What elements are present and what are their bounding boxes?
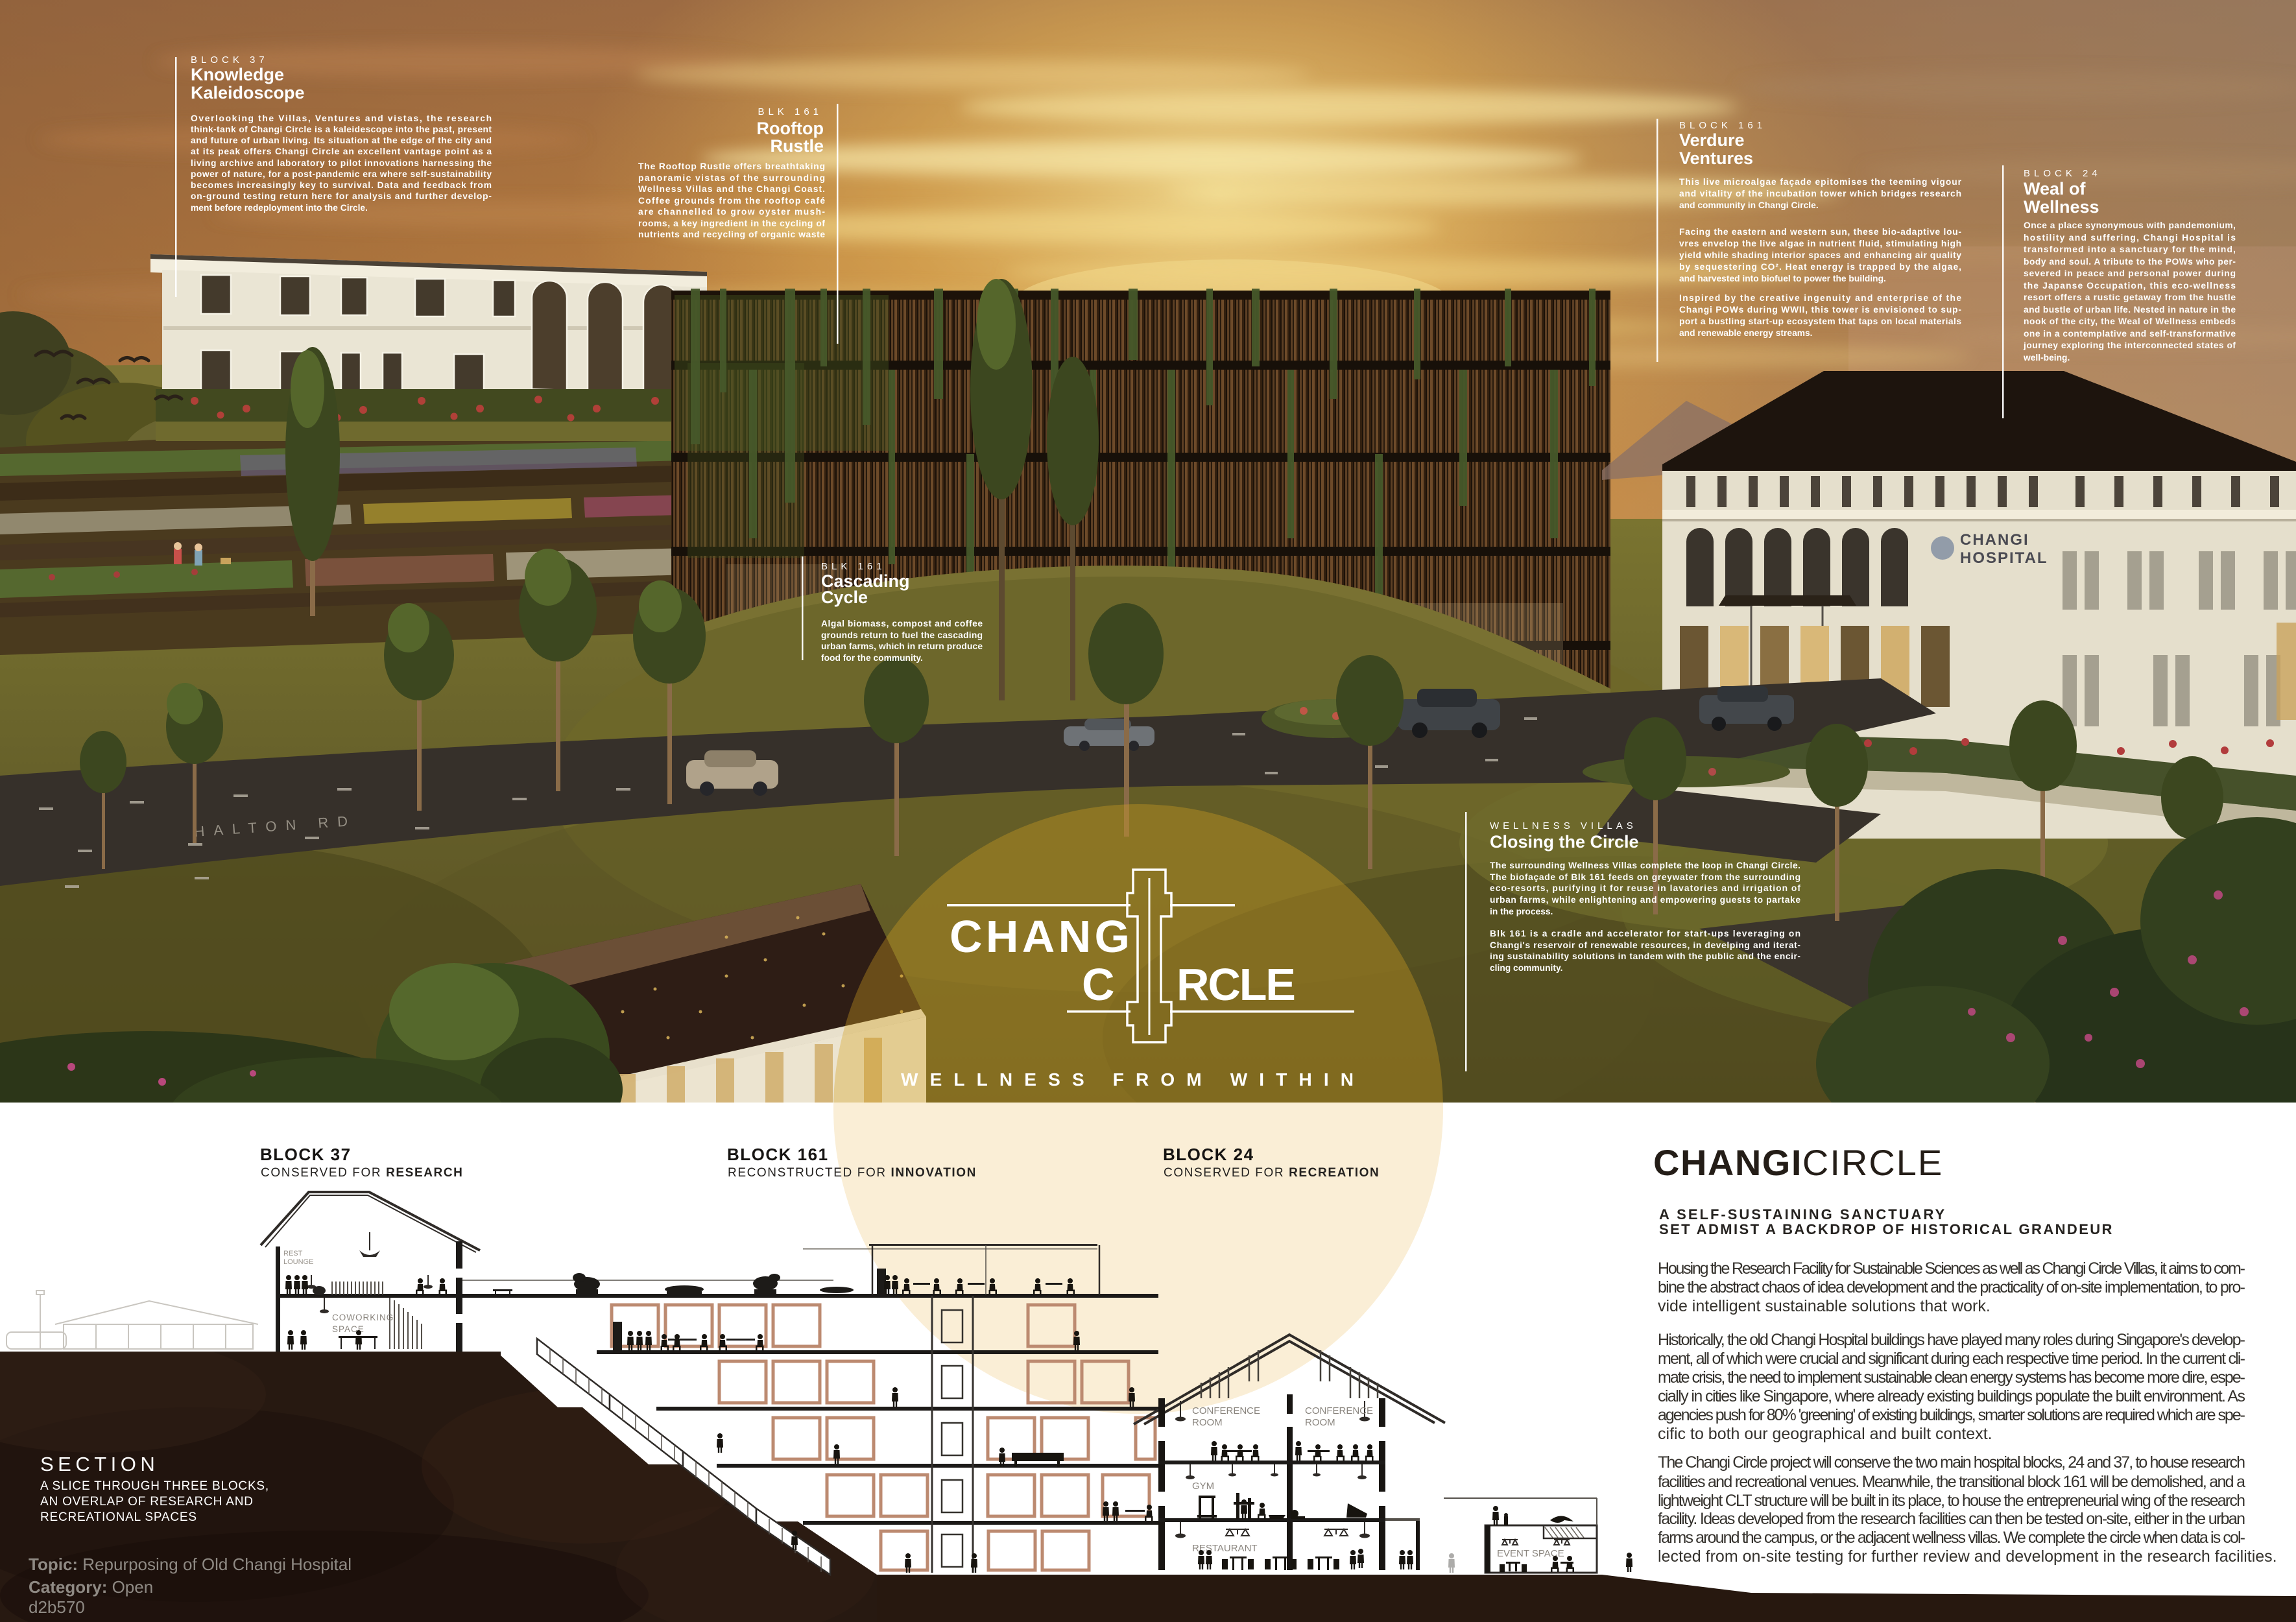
svg-text:ment before redeployment into: ment before redeployment into the Circle… [191, 203, 368, 213]
svg-text:Historically, the old Changi H: Historically, the old Changi Hospital bu… [1658, 1331, 2245, 1349]
svg-text:Housing the Research Facility: Housing the Research Facility for Sustai… [1658, 1259, 2245, 1278]
svg-text:BLOCK 161: BLOCK 161 [1679, 120, 1766, 131]
svg-text:eco-resorts, purifying it for: eco-resorts, purifying it for reuse in l… [1490, 883, 1800, 893]
svg-text:one in a contemplative and sel: one in a contemplative and self-transfor… [2024, 329, 2236, 339]
svg-text:urban farms, while enlightenin: urban farms, while enlightening and empo… [1490, 895, 1800, 905]
svg-text:ing sustainability solutions i: ing sustainability solutions in tandem w… [1490, 951, 1800, 961]
svg-text:The Rooftop Rustle offers brea: The Rooftop Rustle offers breathtaking [638, 161, 825, 171]
svg-text:lightweight CLT structure will: lightweight CLT structure will be built … [1658, 1492, 2245, 1510]
svg-text:on-ground testing return here: on-ground testing return here for analys… [191, 191, 492, 201]
svg-text:CHANGI: CHANGI [1960, 531, 2029, 549]
svg-text:LOUNGE: LOUNGE [283, 1258, 313, 1266]
svg-text:RCLE: RCLE [1177, 959, 1296, 1010]
svg-text:and harvested into biofuel to: and harvested into biofuel to power the … [1679, 274, 1886, 283]
svg-text:and bustle of urban life. Nest: and bustle of urban life. Nested in natu… [2024, 305, 2236, 315]
svg-text:are channelled to grow oyster: are channelled to grow oyster mush- [638, 207, 825, 217]
svg-text:Weal of: Weal of [2024, 179, 2087, 198]
svg-text:BLOCK 24: BLOCK 24 [2024, 168, 2101, 179]
svg-text:and vitality of the incubation: and vitality of the incubation tower whi… [1679, 189, 1961, 198]
svg-text:Category: Open: Category: Open [29, 1577, 153, 1597]
svg-text:BLOCK 24: BLOCK 24 [1163, 1145, 1254, 1164]
svg-text:cially in cities like Singapor: cially in cities like Singapore, where a… [1658, 1387, 2245, 1405]
svg-text:grounds return to fuel the cas: grounds return to fuel the cascading [821, 630, 983, 640]
svg-text:panoramic vistas of the surrou: panoramic vistas of the surrounding [638, 173, 825, 183]
svg-text:CONFERENCE: CONFERENCE [1305, 1405, 1373, 1416]
svg-text:Wellness: Wellness [2024, 197, 2099, 217]
svg-text:nutrients and recycling of or: nutrients and recycling of organic waste [638, 230, 825, 239]
svg-text:farms around the campus, or th: farms around the campus, or the adjacent… [1658, 1529, 2245, 1547]
svg-text:transformed into a sanctuary f: transformed into a sanctuary for the min… [2024, 244, 2236, 254]
svg-text:The biofaçade of Blk 161 feeds: The biofaçade of Blk 161 feeds on greywa… [1490, 872, 1800, 882]
svg-text:ROOM: ROOM [1305, 1417, 1335, 1428]
svg-text:Kaleidoscope: Kaleidoscope [191, 83, 305, 102]
svg-text:CHANGICIRCLE: CHANGICIRCLE [1653, 1142, 1943, 1183]
svg-text:by sequestering CO². Heat ener: by sequestering CO². Heat energy is trap… [1679, 262, 1961, 272]
svg-text:Once a place synonymous with p: Once a place synonymous with pandemonium… [2024, 221, 2236, 230]
svg-text:Changi's reservoir of renewabl: Changi's reservoir of renewable resource… [1490, 940, 1800, 950]
svg-text:hostility and suffering, Chang: hostility and suffering, Changi Hospital… [2024, 233, 2236, 243]
svg-text:cling community.: cling community. [1490, 963, 1562, 973]
svg-text:Closing the Circle: Closing the Circle [1490, 832, 1639, 852]
svg-text:body and soul. A tribute to th: body and soul. A tribute to the POWs who… [2024, 257, 2236, 267]
svg-text:GYM: GYM [1192, 1481, 1214, 1492]
svg-text:The Changi Circle project will: The Changi Circle project will conserve … [1658, 1453, 2245, 1472]
svg-text:Cycle: Cycle [821, 588, 868, 607]
svg-text:yield while shading interior s: yield while shading interior spaces and … [1679, 250, 1961, 260]
svg-text:think-tank of Changi Circle is: think-tank of Changi Circle is a kaleide… [191, 125, 492, 134]
svg-text:C: C [1082, 959, 1115, 1010]
svg-text:the Japanse Occupation, this e: the Japanse Occupation, this eco-wellnes… [2024, 281, 2236, 291]
svg-text:rooms, a key ingredient in the: rooms, a key ingredient in the cycling o… [638, 219, 825, 228]
svg-text:CONSERVED FOR RESEARCH: CONSERVED FOR RESEARCH [261, 1166, 464, 1180]
svg-text:RECREATIONAL SPACES: RECREATIONAL SPACES [40, 1510, 197, 1524]
svg-text:d2b570: d2b570 [29, 1597, 85, 1617]
svg-text:port a bustling start-up ecosy: port a bustling start-up ecosystem that … [1679, 316, 1961, 326]
svg-text:COWORKING: COWORKING [332, 1313, 394, 1322]
svg-text:Wellness Villas and the Changi: Wellness Villas and the Changi Coast. [638, 184, 825, 194]
svg-text:Overlooking the Villas, Ventur: Overlooking the Villas, Ventures and vis… [191, 113, 492, 123]
svg-text:BLK 161: BLK 161 [758, 106, 822, 117]
svg-text:lected from on-site testing fo: lected from on-site testing for further … [1658, 1547, 2277, 1566]
svg-text:The surrounding Wellness Villa: The surrounding Wellness Villas complete… [1490, 861, 1800, 870]
svg-text:Rustle: Rustle [770, 136, 824, 156]
svg-text:Facing the eastern and western: Facing the eastern and western sun, thes… [1679, 227, 1961, 237]
svg-text:resort offers a rustic getaway: resort offers a rustic getaway from the … [2024, 292, 2236, 302]
svg-text:journey exploring the intercon: journey exploring the interconnected sta… [2023, 340, 2236, 350]
svg-text:ment, all of which were crucia: ment, all of which were crucial and sign… [1658, 1350, 2245, 1368]
svg-text:nook of the city, the Weal of: nook of the city, the Weal of Wellness e… [2024, 316, 2236, 326]
svg-text:cific to both our geographical: cific to both our geographical and built… [1658, 1425, 1992, 1443]
svg-text:severed in peace and personal: severed in peace and personal power duri… [2024, 268, 2236, 278]
svg-text:facility. Ideas developed from: facility. Ideas developed from the resea… [1658, 1510, 2245, 1528]
svg-text:ROOM: ROOM [1192, 1417, 1223, 1428]
svg-text:mate crisis, the need to imple: mate crisis, the need to implement susta… [1658, 1368, 2245, 1387]
svg-text:REST: REST [283, 1250, 303, 1258]
svg-text:BLOCK 161: BLOCK 161 [727, 1145, 829, 1164]
svg-text:WELLNESS VILLAS: WELLNESS VILLAS [1490, 820, 1637, 831]
svg-text:vide intelligent sustainable s: vide intelligent sustainable solutions t… [1658, 1297, 1991, 1315]
svg-text:CONFERENCE: CONFERENCE [1192, 1405, 1260, 1416]
svg-text:power of nature, for a post-pa: power of nature, for a post-pandemic era… [191, 169, 492, 179]
svg-text:urban farms, which in return p: urban farms, which in return produce [821, 641, 983, 651]
svg-text:RECONSTRUCTED FOR INNOVATION: RECONSTRUCTED FOR INNOVATION [728, 1166, 977, 1180]
svg-text:BLK 161: BLK 161 [821, 561, 886, 572]
svg-text:Inspired by the creative ingen: Inspired by the creative ingenuity and e… [1679, 293, 1961, 303]
svg-text:AN OVERLAP OF RESEARCH AND: AN OVERLAP OF RESEARCH AND [40, 1495, 254, 1509]
svg-text:Topic: Repurposing of Old Chan: Topic: Repurposing of Old Changi Hospita… [29, 1555, 352, 1574]
svg-text:A SELF-SUSTAINING SANCTUARY: A SELF-SUSTAINING SANCTUARY [1659, 1206, 1946, 1222]
svg-text:agencies push for 80% 'greenin: agencies push for 80% 'greening' of exis… [1658, 1406, 2245, 1424]
svg-text:becomes increasingly key to su: becomes increasingly key to survival. Da… [191, 180, 492, 190]
svg-text:BLOCK 37: BLOCK 37 [260, 1145, 352, 1164]
svg-text:HOSPITAL: HOSPITAL [1960, 549, 2048, 567]
svg-text:and future of urban living. It: and future of urban living. Its situatio… [191, 136, 492, 145]
svg-text:Knowledge: Knowledge [191, 65, 284, 84]
svg-text:SET ADMIST A BACKDROP OF HISTO: SET ADMIST A BACKDROP OF HISTORICAL GRAN… [1659, 1221, 2114, 1237]
svg-text:BLOCK 37: BLOCK 37 [191, 54, 269, 66]
svg-text:A SLICE THROUGH THREE BLOCKS,: A SLICE THROUGH THREE BLOCKS, [40, 1479, 269, 1493]
svg-text:Algal biomass, compost and cof: Algal biomass, compost and coffee [821, 619, 983, 628]
svg-text:in the process.: in the process. [1490, 907, 1553, 916]
svg-text:living archive and laboratory: living archive and laboratory to pilot i… [191, 158, 492, 168]
svg-text:Rooftop: Rooftop [757, 119, 824, 138]
svg-text:facilities and recreational ve: facilities and recreational venues. Mean… [1658, 1473, 2245, 1491]
svg-text:Verdure: Verdure [1679, 130, 1745, 150]
svg-text:well-being.: well-being. [2023, 353, 2070, 363]
svg-text:and community in Changi Circle: and community in Changi Circle. [1679, 200, 1819, 210]
svg-text:Blk 161 is a cradle and accele: Blk 161 is a cradle and accelerator for … [1490, 929, 1800, 938]
svg-text:and renewable energy streams.: and renewable energy streams. [1679, 328, 1813, 338]
svg-text:bine the abstract chaos of ide: bine the abstract chaos of idea developm… [1658, 1278, 2245, 1296]
svg-text:Coffee grounds from the roofto: Coffee grounds from the rooftop café [638, 196, 825, 206]
svg-text:vres envelop the live algae in: vres envelop the live algae in nutrient … [1679, 239, 1961, 248]
svg-text:Changi POWs during WWII, this: Changi POWs during WWII, this tower is e… [1679, 305, 1961, 315]
svg-text:food for the community.: food for the community. [821, 653, 923, 663]
svg-text:Ventures: Ventures [1679, 149, 1753, 168]
svg-text:CONSERVED FOR RECREATION: CONSERVED FOR RECREATION [1164, 1166, 1380, 1180]
svg-text:CHANG: CHANG [950, 911, 1130, 962]
svg-text:This live microalgae façade ep: This live microalgae façade epitomises t… [1679, 177, 1962, 187]
svg-text:at its peak offers Changi Circ: at its peak offers Changi Circle an exce… [191, 147, 492, 156]
svg-text:SECTION: SECTION [40, 1453, 159, 1475]
